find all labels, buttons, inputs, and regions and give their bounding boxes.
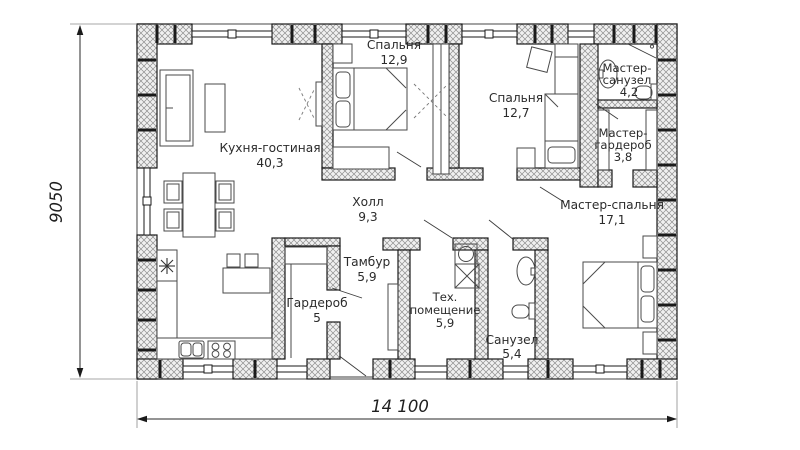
door-bedroom1 xyxy=(397,152,421,167)
door-bathroom xyxy=(489,220,514,240)
dining-table-set xyxy=(164,173,234,237)
room-label-tech-room: Тех.помещение5,9 xyxy=(410,290,481,330)
room-label-wardrobe: Гардероб5 xyxy=(286,296,347,325)
wardrobe-closet xyxy=(414,44,449,174)
window-bottom-kitchen-1 xyxy=(183,365,233,373)
wall-wardrobe-east-lower xyxy=(327,322,340,359)
wall-bath-wardrobe-divider xyxy=(598,100,657,108)
floor-plan-canvas: Кухня-гостиная40,3 Спальня12,9 Спальня12… xyxy=(0,0,800,450)
kitchen-island xyxy=(223,254,270,293)
kitchen-furniture xyxy=(157,250,272,359)
nightstand xyxy=(643,332,657,354)
room-label-vestibule: Тамбур5,9 xyxy=(343,255,391,284)
room-label-master-bath: Мастер-санузел4,2 xyxy=(603,61,652,99)
wall-vestibule-cap xyxy=(383,238,420,250)
window-left-living xyxy=(143,168,151,235)
cabinet xyxy=(555,44,578,95)
wall-vestibule-east xyxy=(398,250,410,359)
room-label-bedroom1: Спальня12,9 xyxy=(367,38,421,67)
dining-table xyxy=(183,173,215,237)
window-top-bedroom2 xyxy=(462,30,517,38)
toilet-icon xyxy=(512,303,535,319)
window-handle-icon xyxy=(650,45,653,48)
room-label-bedroom2: Спальня12,7 xyxy=(489,91,543,120)
wall-wardrobe-north xyxy=(285,238,340,246)
bed xyxy=(333,68,407,130)
pouf xyxy=(527,47,552,72)
room-label-master-wardrobe: Мастер-гардероб3,8 xyxy=(594,126,651,164)
wall-bedroom2-south xyxy=(517,168,585,180)
washbasin-icon xyxy=(517,257,535,285)
bathroom-fixtures xyxy=(512,257,535,319)
wall-bedroom1-west xyxy=(322,44,333,168)
bed xyxy=(583,262,657,328)
door-master-bath xyxy=(628,44,656,58)
window-bottom-kitchen-2 xyxy=(277,366,307,372)
window-top-bedroom1 xyxy=(342,30,406,38)
coffee-table xyxy=(205,84,225,132)
room-label-hall: Холл9,3 xyxy=(352,195,383,224)
wall-bathroom-cap xyxy=(513,238,548,250)
window-bottom-bathroom xyxy=(503,366,528,372)
window-bottom-tech xyxy=(415,366,447,372)
shelf xyxy=(285,247,327,264)
dresser xyxy=(333,147,389,169)
dimension-label-horizontal: 14 100 xyxy=(371,397,429,416)
room-label-master-bedroom: Мастер-спальня17,1 xyxy=(560,198,664,227)
dimension-horizontal: 14 100 xyxy=(137,381,677,428)
dimension-label-vertical: 9050 xyxy=(47,181,66,223)
door-tech-room xyxy=(424,220,452,238)
window-top-masterbath xyxy=(568,31,594,37)
wall-master-wardrobe-south-b xyxy=(633,170,657,187)
wall-kitchen-east xyxy=(272,238,285,359)
room-label-bathroom: Санузел5,4 xyxy=(486,333,539,361)
room-label-kitchen-living: Кухня-гостиная40,3 xyxy=(219,141,320,170)
wall-bedroom1-south xyxy=(322,168,395,180)
wall-master-wardrobe-south-a xyxy=(598,170,612,187)
nightstand xyxy=(333,44,352,63)
boiler-star-icon xyxy=(159,258,175,274)
dimension-vertical: 9050 xyxy=(47,24,137,379)
window-top-living xyxy=(192,30,272,38)
nightstand xyxy=(517,148,535,168)
wall-bedrooms-divider xyxy=(449,44,459,168)
window-bottom-masterbedroom xyxy=(573,365,627,373)
wall-wardrobe-east-upper xyxy=(327,246,340,290)
kitchen-cabinet-column xyxy=(157,281,177,338)
wall-master-west xyxy=(580,44,598,187)
tv xyxy=(299,82,322,126)
sofa xyxy=(160,70,193,146)
vestibule-radiator xyxy=(388,284,398,350)
bed xyxy=(545,94,578,168)
nightstand xyxy=(643,236,657,258)
master-bedroom-furniture xyxy=(583,236,657,354)
